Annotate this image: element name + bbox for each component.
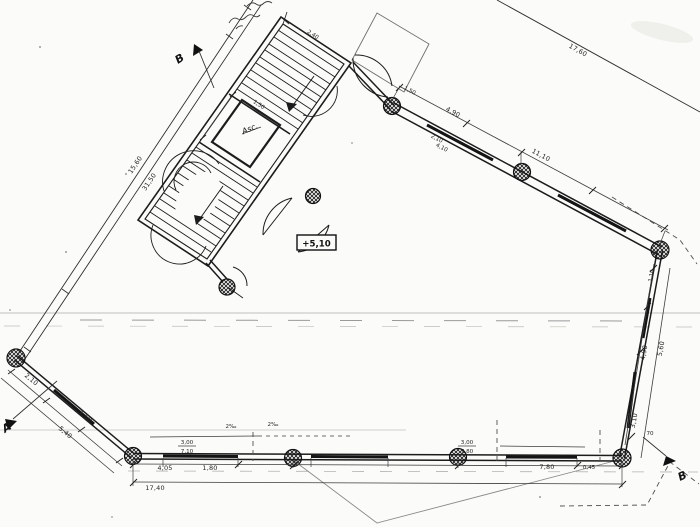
dim-right-wall-corner: 70 [646, 431, 654, 437]
dim-bottom-span-3: 7,80 [539, 463, 554, 471]
paper-specks [9, 46, 700, 518]
property-lines [16, 0, 700, 362]
level-marker: +5,10 [297, 235, 336, 250]
dim-property-left-upper: 15,60 [127, 155, 145, 176]
dimension-labels: 15,60 31,50 17,60 4,90 11,10 1,50 2,10 4… [23, 29, 666, 492]
dim-bottom-stack-left-b: 7,10 [181, 449, 194, 455]
dim-top-wall-span-2: 11,10 [530, 147, 551, 163]
dim-stair-block-top: 2,40 [306, 29, 320, 41]
dim-bottom-stack-left-a: 3,00 [181, 440, 194, 446]
section-marker-b-top: B [173, 44, 214, 88]
doors [233, 55, 392, 286]
floor-plan-drawing: B A B +5,10 Asc. 15,60 31,50 17,60 4,90 … [0, 0, 700, 527]
dim-top-wall-stack-b: 4,10 [435, 143, 449, 154]
section-markers: B A B [0, 44, 689, 484]
dim-right-wall-span-inner: 4,90 [639, 344, 650, 360]
level-marker-label: +5,10 [302, 240, 330, 250]
handwritten-note [229, 2, 272, 30]
dimension-lines [1, 84, 670, 488]
columns [7, 98, 669, 468]
dim-left-wall-total: 5,40 [57, 424, 74, 440]
dim-bottom-stack-right-a: 3,00 [461, 440, 474, 446]
section-label-b-bottom: B [676, 468, 689, 483]
glazing-panels [54, 125, 650, 457]
dim-bottom-span-2: 1,80 [202, 464, 217, 472]
dim-slope-mark-b: 2‰ [267, 422, 279, 428]
building-walls [14, 62, 662, 461]
scan-artifacts [0, 16, 700, 523]
dim-slope-mark-a: 2‰ [225, 424, 237, 430]
dim-bottom-span-1: 4,05 [157, 464, 172, 472]
section-label-b-top: B [173, 51, 187, 66]
dimension-ticks [8, 84, 668, 488]
dim-top-wall-mullion: 1,50 [403, 86, 417, 97]
stair-arrow-up [286, 76, 314, 112]
dim-right-wall-top: 1,10 [648, 269, 656, 283]
elevator-label: Asc. [240, 121, 260, 136]
dim-bottom-stack-right-b: 7,80 [461, 449, 474, 455]
section-marker-b-bottom: B [643, 437, 689, 484]
dim-right-wall-span-outer: 5,60 [656, 340, 667, 356]
dim-bottom-total: 17,40 [145, 484, 165, 492]
floor-plan-sheet: B A B +5,10 Asc. 15,60 31,50 17,60 4,90 … [0, 0, 700, 527]
dim-top-wall-span-1: 4,90 [444, 105, 461, 119]
dim-bottom-span-4: 0,45 [583, 465, 596, 471]
dim-right-wall-lower: 3,10 [629, 412, 640, 428]
